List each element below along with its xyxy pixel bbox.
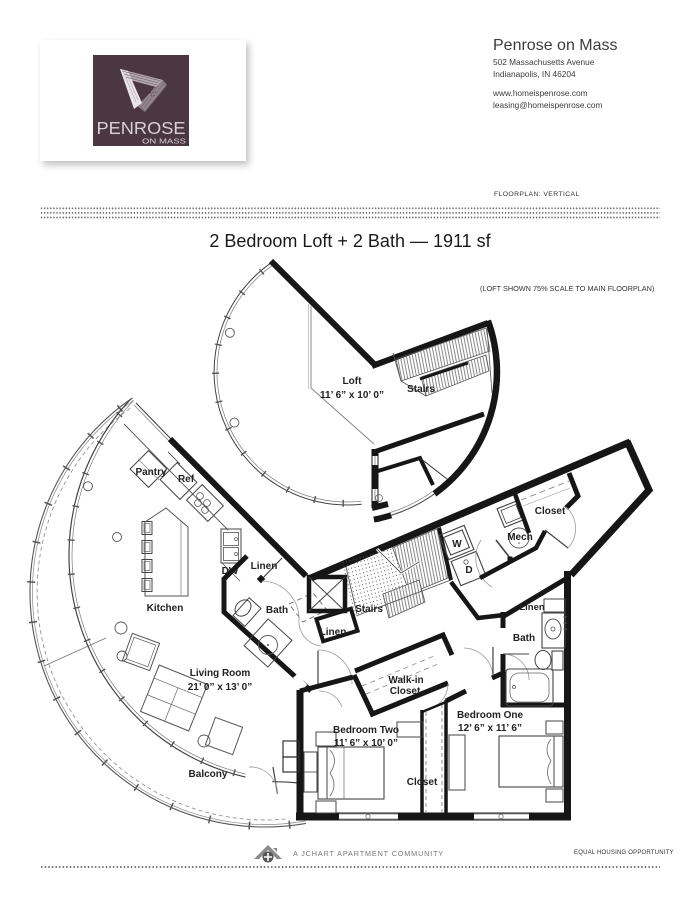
svg-text:ON MASS: ON MASS [142, 137, 186, 146]
svg-text:Bedroom Two: Bedroom Two [333, 725, 399, 736]
svg-text:Closet: Closet [390, 686, 421, 697]
svg-text:11’ 6” x 10’ 0”: 11’ 6” x 10’ 0” [334, 738, 398, 749]
svg-text:Closet: Closet [535, 506, 566, 517]
svg-text:21’ 0” x 13’ 0”: 21’ 0” x 13’ 0” [188, 682, 253, 693]
svg-text:Stairs: Stairs [407, 384, 435, 395]
svg-text:Walk-in: Walk-in [388, 675, 423, 686]
svg-text:Mech: Mech [507, 532, 533, 543]
svg-text:Closet: Closet [407, 777, 438, 788]
svg-text:Ref: Ref [178, 474, 195, 485]
svg-text:W: W [452, 539, 462, 550]
svg-text:Linen: Linen [251, 561, 278, 572]
svg-text:Linen: Linen [519, 602, 545, 613]
svg-text:Bath: Bath [513, 633, 535, 644]
svg-text:Loft: Loft [343, 376, 363, 387]
svg-text:D: D [465, 565, 472, 576]
svg-text:PENROSE: PENROSE [97, 118, 186, 138]
svg-text:Kitchen: Kitchen [147, 603, 184, 614]
svg-text:12’ 6” x 11’ 6”: 12’ 6” x 11’ 6” [458, 723, 522, 734]
svg-text:Linen: Linen [320, 627, 347, 638]
svg-text:11’ 6” x 10’ 0”: 11’ 6” x 10’ 0” [320, 390, 384, 401]
svg-text:Bedroom One: Bedroom One [457, 710, 524, 721]
svg-text:Stairs: Stairs [355, 604, 383, 615]
svg-text:Balcony: Balcony [189, 769, 228, 780]
svg-text:Bath: Bath [266, 605, 288, 616]
svg-text:Living Room: Living Room [190, 668, 251, 679]
svg-text:Pantry: Pantry [135, 467, 167, 478]
